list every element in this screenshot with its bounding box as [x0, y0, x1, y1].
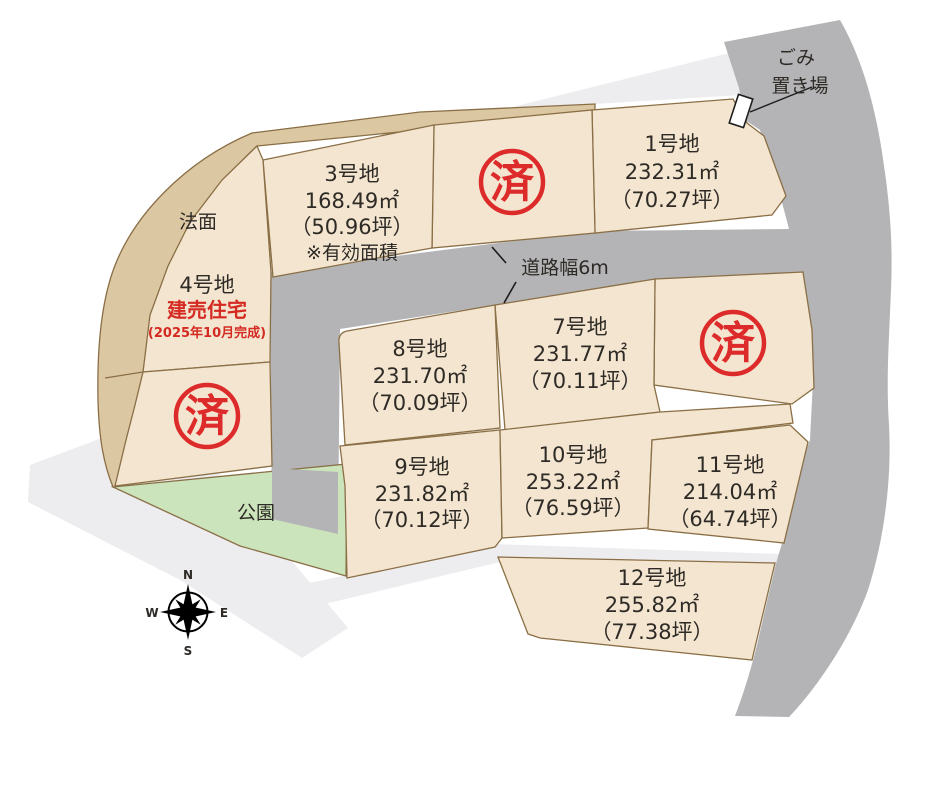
lot-map-canvas: ごみ 置き場 法面 公園 道路幅6m 1号地 232.31㎡ （70.27坪） … [0, 0, 940, 788]
plot-12-name: 12号地 [618, 566, 687, 590]
plot-8-area-tsubo: （70.09坪） [358, 391, 481, 415]
plot-11-area-tsubo: （64.74坪） [668, 507, 791, 531]
sold-stamp-plot-5: 済 [176, 385, 238, 447]
plot-8-name: 8号地 [392, 337, 447, 361]
plot-4-status: 建売住宅 [167, 298, 247, 322]
plot-3-name: 3号地 [324, 162, 379, 186]
plot-7-area-m2: 231.77㎡ [533, 342, 627, 366]
plot-10-area-tsubo: （76.59坪） [511, 496, 634, 520]
plot-12-area-tsubo: （77.38坪） [590, 620, 713, 644]
site-plan-svg: ごみ 置き場 法面 公園 道路幅6m 1号地 232.31㎡ （70.27坪） … [0, 0, 940, 788]
slope-label: 法面 [179, 211, 217, 233]
plot-10-name: 10号地 [539, 443, 608, 467]
compass-n: N [183, 568, 193, 582]
garbage-label-line1: ごみ [777, 47, 815, 69]
plot-7-area-tsubo: （70.11坪） [518, 369, 641, 393]
sold-stamp-plot-6: 済 [702, 312, 764, 374]
plot-1-name: 1号地 [644, 132, 699, 156]
compass-s: S [184, 644, 193, 658]
plot-11-area-m2: 214.04㎡ [683, 480, 777, 504]
plot-3-area-tsubo: （50.96坪） [290, 215, 413, 239]
road-width-label: 道路幅6m [521, 257, 609, 279]
sold-stamp-char: 済 [490, 157, 535, 208]
plot-4-status-note: (2025年10月完成) [148, 325, 266, 341]
plot-8-area-m2: 231.70㎡ [373, 364, 467, 388]
plot-9-name: 9号地 [394, 455, 449, 479]
plot-4-name: 4号地 [179, 273, 234, 297]
sold-stamp-char: 済 [711, 318, 756, 369]
plot-1-area-m2: 232.31㎡ [625, 160, 719, 184]
garbage-label-line2: 置き場 [771, 75, 828, 97]
compass-e: E [220, 606, 228, 620]
compass-w: W [145, 606, 158, 620]
plot-3-note: ※有効面積 [306, 242, 398, 264]
plot-3-area-m2: 168.49㎡ [305, 189, 399, 213]
plot-12-area-m2: 255.82㎡ [605, 593, 699, 617]
plot-7-name: 7号地 [552, 315, 607, 339]
plot-1-area-tsubo: （70.27坪） [610, 188, 733, 212]
plot-9-area-m2: 231.82㎡ [375, 482, 469, 506]
plot-9-area-tsubo: （70.12坪） [360, 508, 483, 532]
plot-11-name: 11号地 [696, 453, 765, 477]
sold-stamp-plot-2: 済 [481, 151, 543, 213]
plot-10-area-m2: 253.22㎡ [526, 470, 620, 494]
sold-stamp-char: 済 [185, 391, 230, 442]
park-label: 公園 [237, 502, 275, 524]
